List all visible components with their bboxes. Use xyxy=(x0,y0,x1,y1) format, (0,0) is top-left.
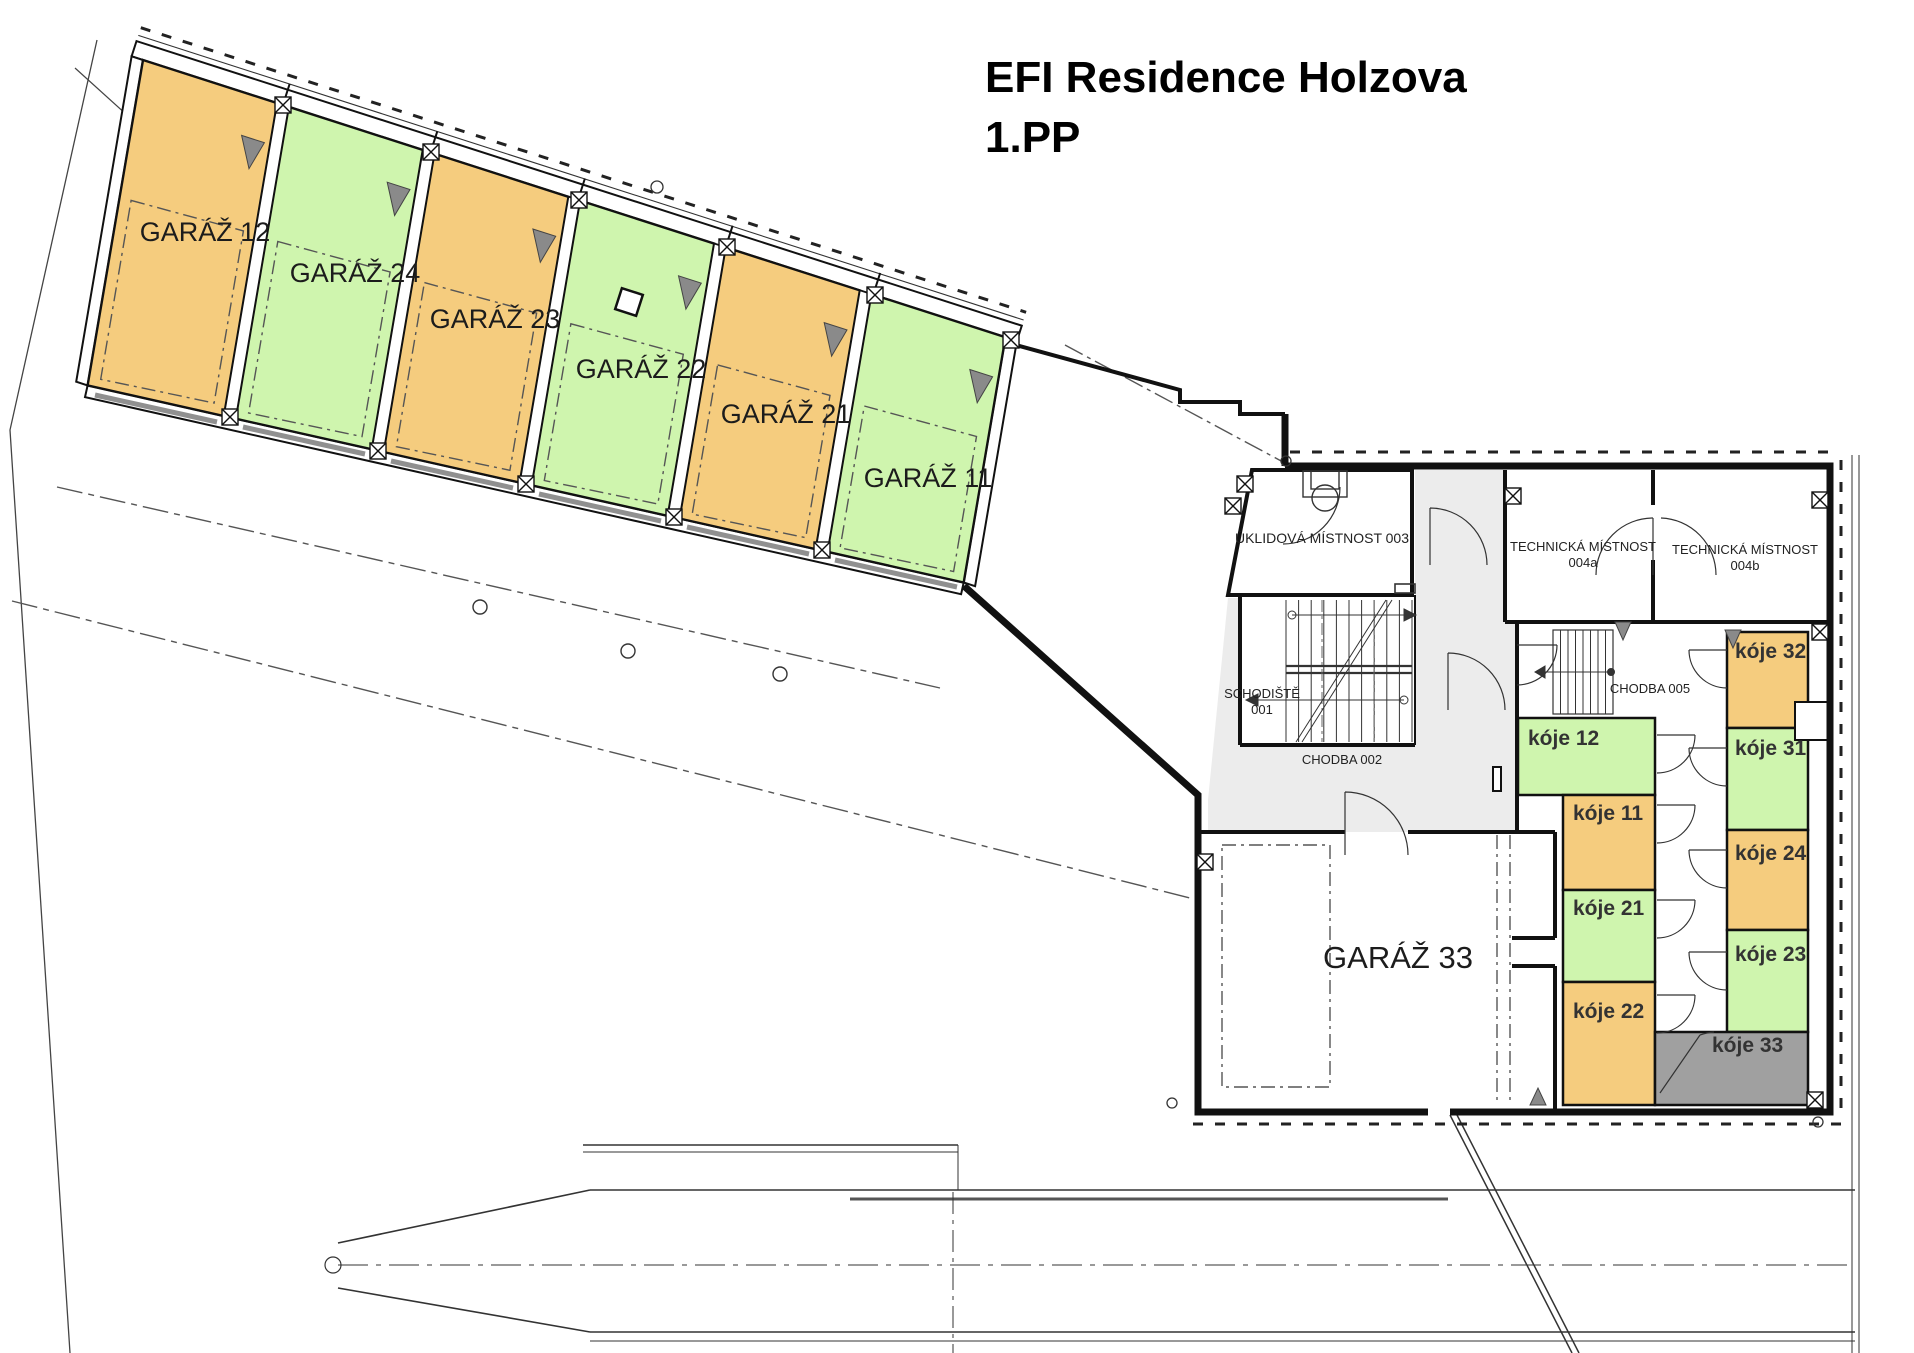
plan-subtitle: 1.PP xyxy=(985,113,1080,162)
chodba-002-label: CHODBA 002 xyxy=(1302,752,1382,767)
door-frame-mark xyxy=(1493,767,1501,791)
koje-11-label: kóje 11 xyxy=(1573,802,1643,825)
koje-31-label: kóje 31 xyxy=(1735,737,1807,760)
garage-11-label: GARÁŽ 11 xyxy=(864,462,993,493)
garage33-ramp-lines xyxy=(1450,1115,1579,1353)
garage-33-label: GARÁŽ 33 xyxy=(1323,940,1473,975)
garage-22-label: GARÁŽ 22 xyxy=(576,353,707,384)
koje-22-label: kóje 22 xyxy=(1573,1000,1644,1023)
tech-004a-label-line2: 004a xyxy=(1569,555,1599,570)
apron-survey-circles xyxy=(473,600,787,681)
koje-23-label: kóje 23 xyxy=(1735,943,1806,966)
garage-12-label: GARÁŽ 12 xyxy=(140,216,271,247)
koje-12-label: kóje 12 xyxy=(1528,727,1599,750)
driveway-road xyxy=(325,1145,1855,1353)
schodiste-label-line1: SCHODIŠTĚ xyxy=(1224,686,1300,701)
uklidova-label: ÚKLIDOVÁ MÍSTNOST 003 xyxy=(1235,530,1409,546)
survey-circle-top-wall xyxy=(651,181,663,193)
chodba-005-label: CHODBA 005 xyxy=(1610,681,1690,696)
koje-32-label: kóje 32 xyxy=(1735,640,1806,663)
schodiste-label-line2: 001 xyxy=(1251,702,1273,717)
floor-plan-svg: GARÁŽ 12 GARÁŽ 24 GARÁŽ 23 GARÁŽ 22 GARÁ… xyxy=(0,0,1914,1353)
koje-21-label: kóje 21 xyxy=(1573,897,1645,920)
garage-24-label: GARÁŽ 24 xyxy=(290,257,421,288)
schodiste-room xyxy=(1240,598,1415,745)
band-to-building-connector-wall xyxy=(1016,345,1285,414)
garage-21-label: GARÁŽ 21 xyxy=(721,398,852,429)
koje-33-label: kóje 33 xyxy=(1712,1034,1783,1057)
plan-title: EFI Residence Holzova xyxy=(985,53,1467,102)
garage-23-label: GARÁŽ 23 xyxy=(430,303,561,334)
tech-004a-label-line1: TECHNICKÁ MÍSTNOST xyxy=(1510,539,1656,554)
tech-004b-label-line2: 004b xyxy=(1731,558,1760,573)
tech-004b-label-line1: TECHNICKÁ MÍSTNOST xyxy=(1672,542,1818,557)
koje-32-shaft xyxy=(1795,702,1829,740)
floor-plan-page: GARÁŽ 12 GARÁŽ 24 GARÁŽ 23 GARÁŽ 22 GARÁ… xyxy=(0,0,1914,1353)
koje-24-label: kóje 24 xyxy=(1735,842,1807,865)
garage-23-column xyxy=(615,288,643,316)
